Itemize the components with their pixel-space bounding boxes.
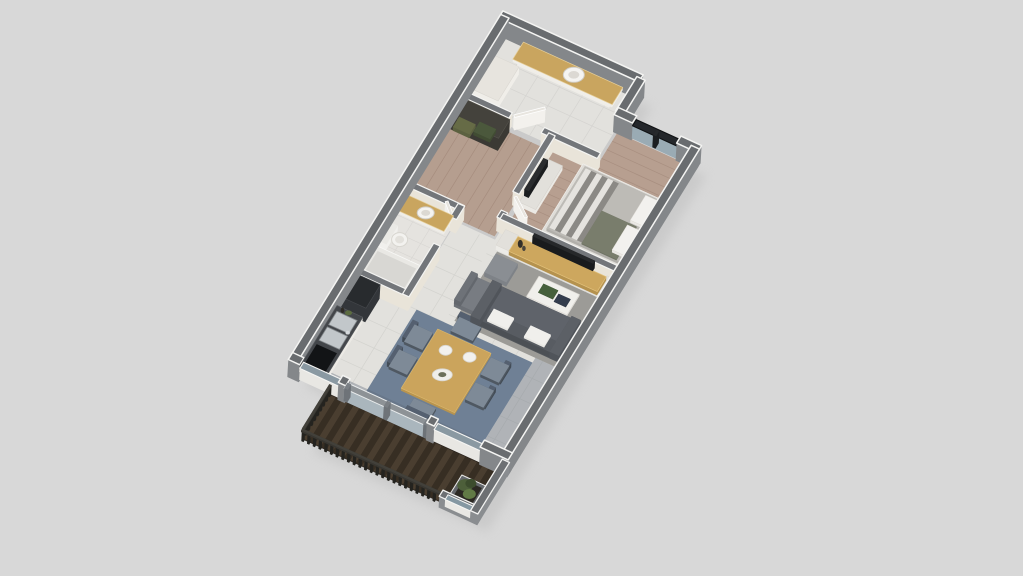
floorplan-viewport [0,0,1023,576]
floorplan-3d-render [0,0,1023,576]
